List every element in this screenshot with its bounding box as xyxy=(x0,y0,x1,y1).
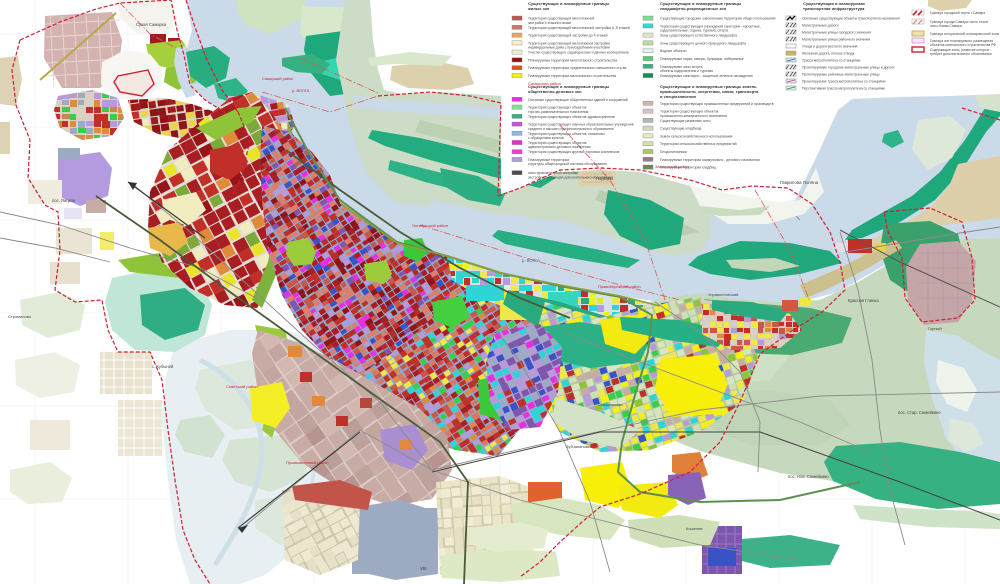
svg-text:Планируемые территории многоэт: Планируемые территории многоэтажного стр… xyxy=(528,58,617,62)
svg-text:Смышляевка: Смышляевка xyxy=(598,402,623,407)
svg-text:пос. Стар. Семейкино: пос. Стар. Семейкино xyxy=(898,410,941,415)
svg-text:пос. Яицкое: пос. Яицкое xyxy=(52,198,76,203)
svg-text:Планируемые территории коммуна: Планируемые территории коммунально - дел… xyxy=(660,158,760,162)
svg-text:Содержащие зоны, развитие кото: Содержащие зоны, развитие которыхтребует… xyxy=(930,48,992,56)
svg-text:Территория существующей многоэ: Территория существующей многоэтажной зас… xyxy=(528,26,630,30)
svg-text:Проектируемая трасса метрополи: Проектируемая трасса метрополитена со ст… xyxy=(802,80,886,84)
svg-text:Промышленный район: Промышленный район xyxy=(286,460,328,465)
svg-text:Территория существующей малоэт: Территория существующей малоэтажной заст… xyxy=(528,41,610,49)
svg-text:Земли сельскохозяйственного ис: Земли сельскохозяйственного использовани… xyxy=(660,134,732,138)
svg-text:Планируемые санитарно - защитн: Планируемые санитарно - защитные зеленые… xyxy=(660,74,753,78)
svg-text:Зоны существующего естественно: Зоны существующего естественного ландшаф… xyxy=(660,34,737,38)
svg-text:Граница зон планируемого разме: Граница зон планируемого размещенияобъек… xyxy=(930,39,996,47)
svg-text:пос. Нов. Семейкино: пос. Нов. Семейкино xyxy=(788,474,829,479)
svg-text:Планируемые парки, скверы, бул: Планируемые парки, скверы, бульвары, наб… xyxy=(660,57,744,61)
svg-text:Основные существующие обществе: Основные существующие общественных здани… xyxy=(528,98,628,102)
svg-text:Зубчаниновка: Зубчаниновка xyxy=(566,444,593,449)
svg-text:Территория существующих объект: Территория существующих объектовадминист… xyxy=(528,141,591,149)
svg-text:Железная дорога, полоса отвода: Железная дорога, полоса отвода xyxy=(802,52,854,56)
svg-text:Плодопитомники: Плодопитомники xyxy=(660,150,687,154)
svg-text:Правобережный район: Правобережный район xyxy=(598,284,641,289)
svg-text:Водные объекты: Водные объекты xyxy=(660,49,687,53)
svg-text:Участки существующего садоводч: Участки существующего садоводческих и да… xyxy=(528,51,629,55)
svg-text:Зоны существующего ценного при: Зоны существующего ценного природного ла… xyxy=(660,41,746,45)
svg-text:Самарский район: Самарский район xyxy=(262,77,293,81)
svg-text:VIII: VIII xyxy=(420,566,427,571)
svg-text:Существующие режимные зоны: Существующие режимные зоны xyxy=(660,119,711,123)
svg-text:Трасса метрополитена со станци: Трасса метрополитена со станциями xyxy=(802,59,860,63)
svg-text:Территория существующих крупны: Территория существующих крупных торговых… xyxy=(528,150,620,154)
svg-text:Магистральные улицы районного: Магистральные улицы районного значения xyxy=(802,38,870,42)
svg-text:Существующая и планируемаятран: Существующая и планируемаятранспортная и… xyxy=(803,1,865,11)
svg-text:Планируемые территории кладбищ: Планируемые территории кладбищ xyxy=(660,166,716,170)
svg-text:Гаврилова Поляна: Гаврилова Поляна xyxy=(780,180,819,185)
svg-text:Кошелев: Кошелев xyxy=(686,526,703,531)
svg-text:р. ВОЛГА: р. ВОЛГА xyxy=(292,88,310,93)
svg-text:Планируемые территории среднеэ: Планируемые территории среднеэтажного см… xyxy=(528,66,627,70)
svg-text:с. Кубыней: с. Кубыней xyxy=(152,364,174,369)
svg-text:Октябрьский район: Октябрьский район xyxy=(412,223,448,228)
svg-text:Территория существующей застро: Территория существующей застройки до 4 э… xyxy=(528,34,608,38)
svg-text:Проектируемые районные магистр: Проектируемые районные магистральные ули… xyxy=(802,73,880,77)
svg-text:Существующие кладбища: Существующие кладбища xyxy=(660,127,701,131)
svg-text:Граница городской черты г.Сама: Граница городской черты г.Самара xyxy=(930,11,985,15)
svg-text:Стромилово: Стромилово xyxy=(8,314,32,319)
svg-text:Красная Глинка: Красная Глинка xyxy=(848,298,879,303)
svg-text:Управленческий: Управленческий xyxy=(708,292,738,297)
svg-text:Территории существующих объект: Территории существующих объектовпромышле… xyxy=(660,110,727,118)
svg-text:Проектируемые городские магист: Проектируемые городские магистральные ул… xyxy=(802,66,894,70)
svg-text:Перспективная трасса метрополи: Перспективная трасса метрополитена со ст… xyxy=(802,87,885,91)
svg-text:Территории сельскохозяйственны: Территории сельскохозяйственных предприя… xyxy=(660,142,737,146)
svg-text:р. ВОЛГА: р. ВОЛГА xyxy=(522,258,540,263)
svg-text:Улицы и дороги местного значен: Улицы и дороги местного значения xyxy=(802,45,858,49)
svg-text:Основные существующие объекты: Основные существующие объекты транспортн… xyxy=(802,17,900,21)
svg-text:Советский район: Советский район xyxy=(226,384,258,389)
svg-text:Сухая Самарка: Сухая Самарка xyxy=(136,22,167,27)
svg-text:Существующие городские озелене: Существующие городские озелененные терри… xyxy=(660,17,776,21)
svg-text:Горный: Горный xyxy=(928,326,942,331)
svg-text:Граница исторической планирово: Граница исторической планировочной зоны xyxy=(930,32,1000,36)
svg-text:Планируемые территории малоэта: Планируемые территории малоэтажного стро… xyxy=(528,74,616,78)
svg-text:Территории существующих промы: Территории существующих промышленных пре… xyxy=(660,102,774,106)
svg-text:Территория существующих объект: Территория существующих объектовторгово-… xyxy=(528,106,589,114)
svg-text:Территория существующих объект: Территория существующих объектов здравоо… xyxy=(528,115,615,119)
svg-text:Магистральные дороги: Магистральные дороги xyxy=(802,24,839,28)
svg-text:Магистральные улицы городского: Магистральные улицы городского значения xyxy=(802,31,871,35)
